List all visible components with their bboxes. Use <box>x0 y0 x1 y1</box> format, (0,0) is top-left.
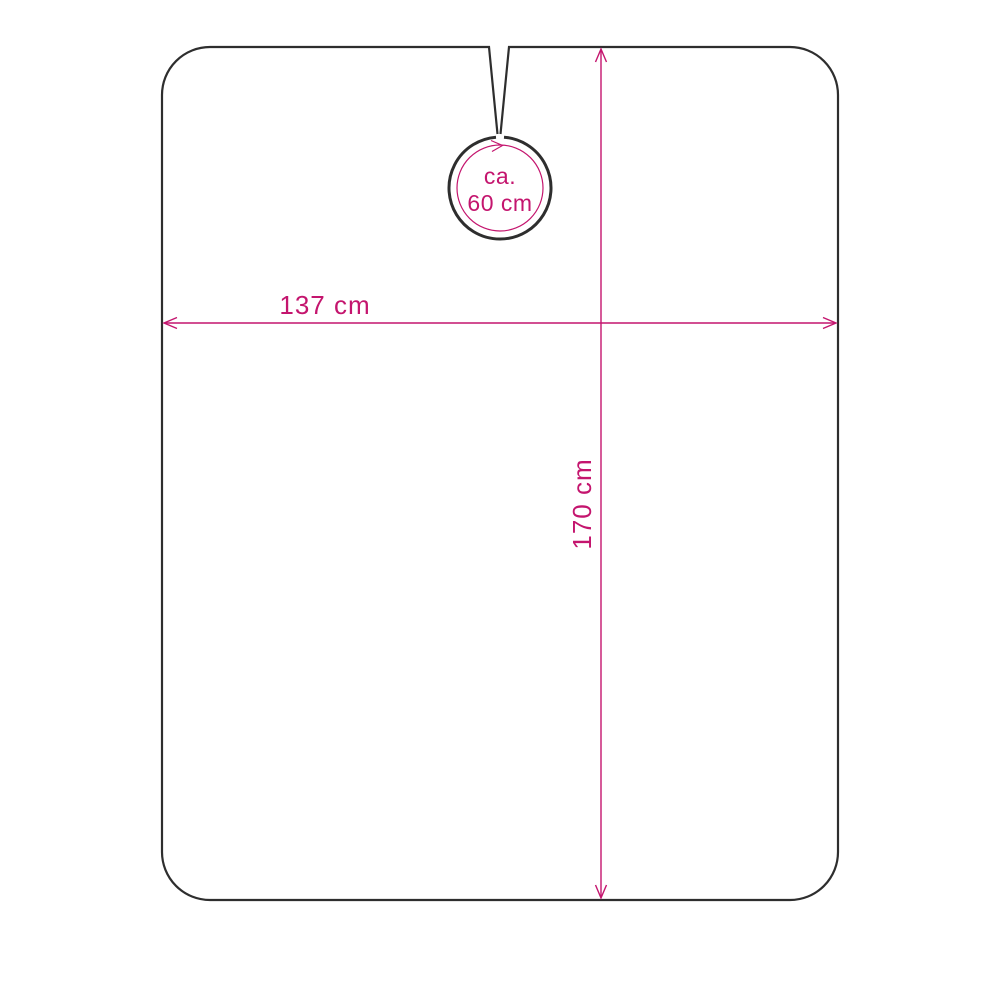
height-dimension: 170 cm <box>567 49 607 898</box>
neck-dimension-label-line2: 60 cm <box>467 190 532 216</box>
width-dimension-label: 137 cm <box>279 290 370 320</box>
width-dimension: 137 cm <box>164 290 836 329</box>
diagram-canvas: ca. 60 cm 137 cm 170 cm <box>0 0 1000 1000</box>
height-dimension-label: 170 cm <box>567 458 597 549</box>
neck-dimension-label-line1: ca. <box>484 163 516 189</box>
cape-dimension-diagram: ca. 60 cm 137 cm 170 cm <box>0 0 1000 1000</box>
